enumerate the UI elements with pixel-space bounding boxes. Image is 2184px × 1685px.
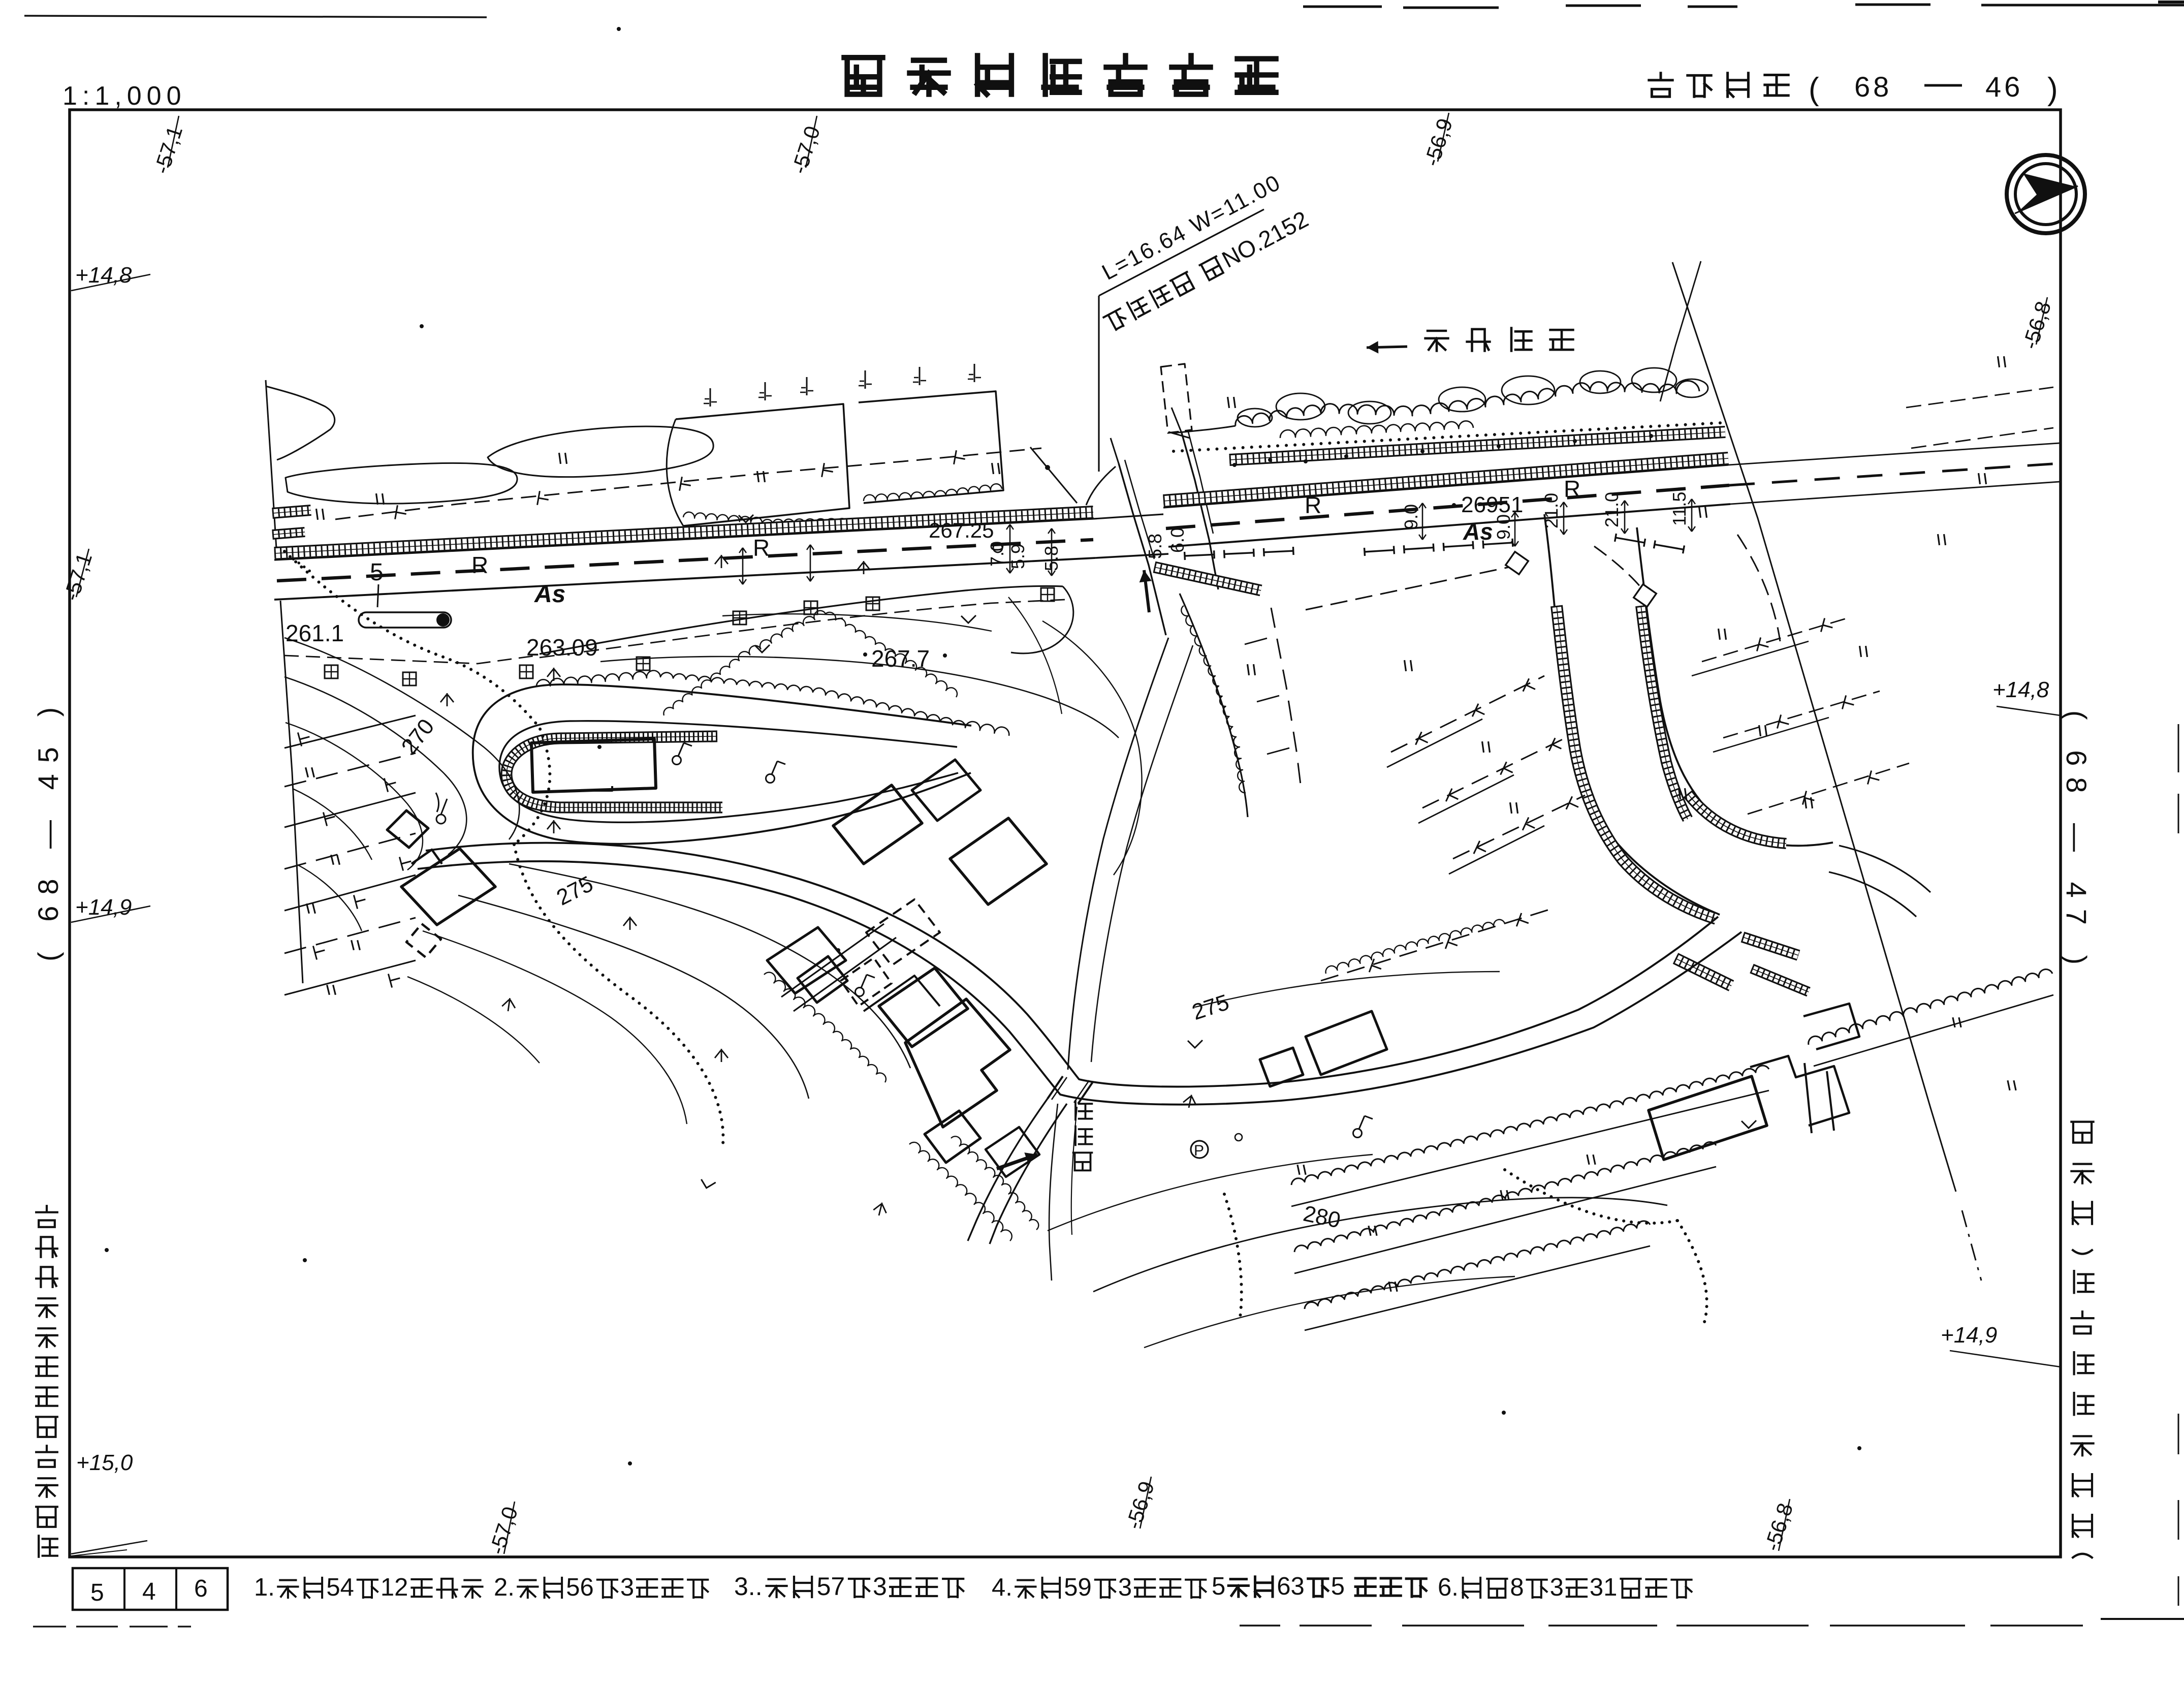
svg-text:3: 3 — [1118, 1574, 1132, 1601]
svg-text:4.: 4. — [992, 1574, 1012, 1601]
svg-text:As: As — [534, 581, 565, 608]
svg-text:( 68 — 47 ): ( 68 — 47 ) — [2061, 710, 2093, 976]
svg-text:5: 5 — [370, 559, 384, 586]
svg-text:6.: 6. — [1438, 1574, 1459, 1601]
svg-text:(: ( — [1809, 72, 1819, 107]
svg-text:9.0: 9.0 — [1493, 514, 1514, 540]
svg-text:5: 5 — [90, 1579, 104, 1606]
svg-text:3: 3 — [1550, 1574, 1564, 1601]
svg-text:261.1: 261.1 — [286, 620, 344, 646]
svg-text:): ) — [2047, 72, 2058, 107]
svg-text:5: 5 — [1212, 1573, 1225, 1600]
svg-text:57: 57 — [817, 1572, 845, 1601]
svg-text:( 68 — 45 ): ( 68 — 45 ) — [32, 696, 64, 961]
svg-text:4: 4 — [142, 1578, 156, 1605]
svg-text:R: R — [471, 552, 488, 578]
svg-text:+14,8: +14,8 — [1992, 677, 2049, 702]
svg-text:54: 54 — [326, 1574, 354, 1601]
svg-text:+15,0: +15,0 — [76, 1450, 133, 1475]
svg-text:3: 3 — [620, 1574, 634, 1601]
svg-text:R: R — [753, 535, 770, 561]
svg-text:21.0: 21.0 — [1541, 493, 1562, 528]
svg-text:63: 63 — [1277, 1573, 1305, 1600]
svg-text:6: 6 — [194, 1575, 208, 1602]
svg-text:P: P — [1194, 1142, 1204, 1159]
svg-text:5: 5 — [1331, 1573, 1345, 1600]
svg-text:2.: 2. — [494, 1574, 515, 1601]
svg-text:9.0: 9.0 — [1401, 504, 1421, 529]
svg-text:263.09: 263.09 — [526, 634, 598, 661]
svg-text:6.0: 6.0 — [1167, 527, 1188, 553]
svg-text:56: 56 — [566, 1574, 594, 1601]
svg-text:3..: 3.. — [734, 1572, 763, 1601]
svg-text:+14,9: +14,9 — [1941, 1323, 1997, 1348]
svg-text:68: 68 — [1854, 71, 1892, 103]
svg-text:7.0: 7.0 — [987, 541, 1007, 567]
svg-text:As: As — [1463, 518, 1493, 545]
svg-text:31: 31 — [1590, 1574, 1618, 1601]
svg-text:267.25: 267.25 — [929, 518, 994, 542]
svg-text:11.5: 11.5 — [1669, 492, 1690, 526]
svg-text:3: 3 — [873, 1572, 887, 1601]
svg-text:12: 12 — [381, 1574, 408, 1601]
svg-text:21.0: 21.0 — [1601, 492, 1622, 527]
svg-text:46: 46 — [1985, 71, 2023, 103]
svg-text:1.: 1. — [254, 1574, 275, 1601]
svg-text:R: R — [1564, 476, 1580, 502]
svg-text:1:1,000: 1:1,000 — [62, 81, 186, 111]
svg-text:5.8: 5.8 — [1145, 534, 1165, 559]
svg-text:R: R — [1305, 492, 1321, 518]
svg-text:8: 8 — [1510, 1574, 1524, 1601]
svg-text:59: 59 — [1064, 1574, 1092, 1601]
